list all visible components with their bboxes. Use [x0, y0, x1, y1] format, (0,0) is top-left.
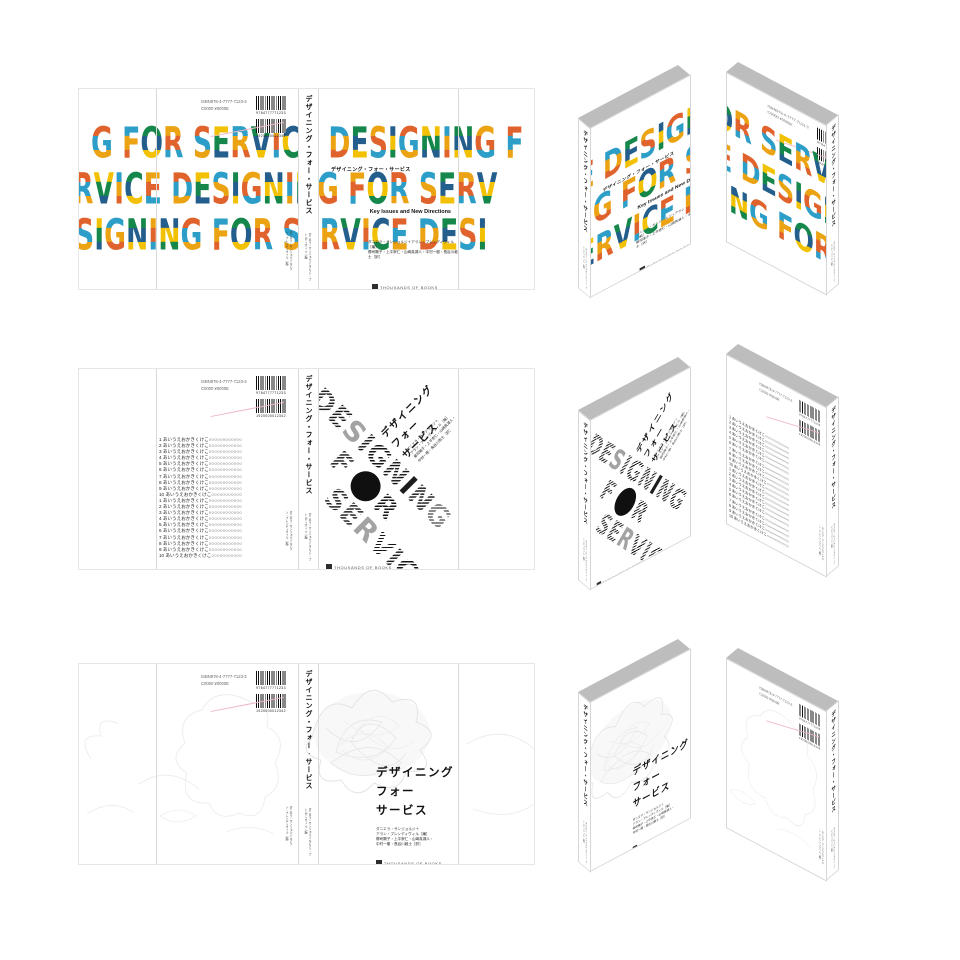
front-cover-art-design2: DESIGNING FR SERVICE デザイニング フォー サービス ダニエ…: [318, 369, 458, 569]
isbn-text: ISBN978-4-7777-7123-3: [201, 674, 247, 679]
fold-line: [298, 664, 299, 864]
fold-line: [318, 89, 319, 289]
back-cover-credits: ダニエラ・サンジョルジ＋アラン・プレンディヴィル［編］: [285, 806, 293, 850]
book-3d-back-design1: G FOR SERVICE DESIGNING F RVICE DESIGNIN…: [722, 60, 852, 305]
barcode-block: ISBN978-4-7777-7123-3 C0000 ¥0000E 97847…: [727, 356, 827, 410]
fold-line: [156, 664, 157, 864]
publisher-logo-icon: [597, 581, 601, 588]
publisher-logo-slot: THOUSANDS OF BOOKS: [372, 277, 438, 290]
barcode-number-1: 9784777771233: [256, 391, 286, 395]
spine-title: デザイニング・フォー・サービス: [582, 701, 588, 808]
spine-credits: ダニエラ・サンジョルジ＋アラン・プレンディヴィル［編］: [304, 233, 312, 283]
fold-line: [156, 89, 157, 289]
fold-line: [458, 664, 459, 864]
publisher-logo-icon: [376, 860, 382, 865]
design-presentation-board: G FOR SERVICE DESIGNING F RVICE DESIGNIN…: [0, 0, 960, 960]
jacket-flat-design3: ISBN978-4-7777-7123-3 C0000 ¥0000E 97847…: [78, 663, 535, 865]
fold-line: [458, 89, 459, 289]
fold-line: [318, 369, 319, 569]
spine-credits: ダニエラ・サンジョルジ＋アラン・プレンディヴィル［編］: [583, 819, 588, 866]
back-cover-credits: ダニエラ・サンジョルジ＋アラン・プレンディヴィル［編］: [285, 231, 293, 275]
book-3d-back-design3: ISBN978-4-7777-7123-3 C0000 ¥0000E 97847…: [722, 646, 852, 891]
back-cover-credits: ダニエラ・サンジョルジ＋アラン・プレンディヴィル［編］: [818, 829, 824, 869]
barcode-number-1: 9784777771233: [256, 111, 286, 115]
publisher-logo-icon: [326, 564, 332, 569]
cover-credits: ダニエラ・サンジョルジ＋ アラン・プレンディヴィル［編］ 郷司陽子・上平崇仁・山…: [376, 827, 434, 847]
price-code-text: C0000 ¥0000E: [201, 106, 229, 111]
front-cover-panel: デザイニング フォー サービス ダニエラ・サンジョルジ＋ アラン・プレンディヴィ…: [318, 664, 458, 864]
jacket-flat-design2: 1 あいうえおかきくけこ○○○○○○○○○○○○2 あいうえおかきくけこ○○○○…: [78, 368, 535, 570]
publisher-name: THOUSANDS OF BOOKS: [384, 861, 442, 866]
fold-line: [298, 89, 299, 289]
cover-title-japanese: デザイニング・フォー・サービス: [331, 166, 411, 173]
isbn-text: ISBN978-4-7777-7123-3: [201, 99, 247, 104]
back-cover-art-design2: 1 あいうえおかきくけこ○○○○○○○○○○○○2 あいうえおかきくけこ○○○○…: [156, 369, 298, 569]
spine-panel: デザイニング・フォー・サービス ダニエラ・サンジョルジ＋アラン・プレンディヴィル…: [298, 369, 318, 569]
back-cover-panel: ISBN978-4-7777-7123-3 C0000 ¥0000E 97847…: [156, 664, 298, 864]
publisher-logo-icon: [633, 845, 637, 852]
credits-translators: 郷司陽子・上平崇仁・山崎真湖人・中村一樹・長谷川敦士［訳］: [368, 250, 458, 260]
barcode-number-2: 1920000012342: [256, 414, 286, 418]
spine-title: デザイニング・フォー・サービス: [303, 375, 313, 495]
barcode-ean-1: [256, 96, 286, 110]
barcode-ean-1: [256, 376, 286, 390]
spine-title: デザイニング・フォー・サービス: [582, 419, 588, 526]
book-3d-front-design2: デザイニング・フォー・サービス ダニエラ・サンジョルジ＋アラン・プレンディヴィル…: [574, 352, 704, 597]
publisher-logo-icon: [372, 284, 378, 290]
spine-credits: ダニエラ・サンジョルジ＋アラン・プレンディヴィル［編］: [583, 537, 588, 584]
spine-title: デザイニング・フォー・サービス: [830, 709, 836, 816]
fold-line: [298, 369, 299, 569]
price-code-text: C0000 ¥0000E: [201, 386, 229, 391]
spine-credits: ダニエラ・サンジョルジ＋アラン・プレンディヴィル［編］: [583, 245, 588, 292]
book-spine-face: デザイニング・フォー・サービス ダニエラ・サンジョルジ＋アラン・プレンディヴィル…: [826, 114, 839, 295]
back-cover-credits: ダニエラ・サンジョルジ＋アラン・プレンディヴィル［編］: [285, 511, 293, 555]
isbn-text: ISBN978-4-7777-7123-3: [201, 379, 247, 384]
spine-credits: ダニエラ・サンジョルジ＋アラン・プレンディヴィル［編］: [304, 513, 312, 563]
spine-title: デザイニング・フォー・サービス: [303, 95, 313, 215]
book-spine-face: デザイニング・フォー・サービス ダニエラ・サンジョルジ＋アラン・プレンディヴィル…: [826, 396, 839, 577]
jacket-flat-design1: G FOR SERVICE DESIGNING F RVICE DESIGNIN…: [78, 88, 535, 290]
spine-panel: デザイニング・フォー・サービス ダニエラ・サンジョルジ＋アラン・プレンディヴィル…: [298, 664, 318, 864]
back-cover-credits: ダニエラ・サンジョルジ＋アラン・プレンディヴィル［編］: [818, 525, 824, 565]
spine-panel: デザイニング・フォー・サービス ダニエラ・サンジョルジ＋アラン・プレンディヴィル…: [298, 89, 318, 289]
spine-credits: ダニエラ・サンジョルジ＋アラン・プレンディヴィル［編］: [304, 808, 312, 858]
back-cover-panel: ISBN978-4-7777-7123-3 C0000 ¥0000E 97847…: [156, 89, 298, 289]
fold-line: [156, 369, 157, 569]
spine-title: デザイニング・フォー・サービス: [303, 670, 313, 790]
fold-line: [318, 664, 319, 864]
barcode-ean-1: [256, 671, 286, 685]
spine-title: デザイニング・フォー・サービス: [582, 127, 588, 234]
barcode-block: ISBN978-4-7777-7123-3 C0000 ¥0000E 97847…: [727, 660, 827, 714]
book-3d-front-design3: デザイニング・フォー・サービス ダニエラ・サンジョルジ＋アラン・プレンディヴィル…: [574, 634, 704, 879]
book-spine-face: デザイニング・フォー・サービス ダニエラ・サンジョルジ＋アラン・プレンディヴィル…: [826, 700, 839, 881]
book-3d-back-design2: 1 あいうえおかきくけこ○○○○○○○○○○○○2 あいうえおかきくけこ○○○○…: [722, 342, 852, 587]
front-cover-panel: デザイニング・フォー・サービス Key Issues and New Direc…: [318, 89, 458, 289]
front-cover-panel: DESIGNING FR SERVICE デザイニング フォー サービス ダニエ…: [318, 369, 458, 569]
fold-line: [458, 369, 459, 569]
credits-editors: ダニエラ・サンジョルジ＋アラン・プレンディヴィル［編］: [368, 240, 458, 250]
publisher-name: THOUSANDS OF BOOKS: [380, 285, 438, 290]
barcode-number-2: 1920000012342: [256, 709, 286, 713]
back-cover-art-design3: ISBN978-4-7777-7123-3 C0000 ¥0000E 97847…: [156, 664, 298, 864]
spine-credits: ダニエラ・サンジョルジ＋アラン・プレンディヴィル［編］: [831, 241, 836, 288]
cover-credits: ダニエラ・サンジョルジ＋アラン・プレンディヴィル［編］ 郷司陽子・上平崇仁・山崎…: [368, 240, 458, 260]
publisher-logo: THOUSANDS OF BOOKS: [372, 284, 438, 290]
book-3d-front-design1: デザイニング・フォー・サービス ダニエラ・サンジョルジ＋アラン・プレンディヴィル…: [574, 60, 704, 305]
spine-credits: ダニエラ・サンジョルジ＋アラン・プレンディヴィル［編］: [831, 827, 836, 874]
price-code-text: C0000 ¥0000E: [201, 681, 229, 686]
cover-subtitle-english: Key Issues and New Directions: [370, 209, 451, 215]
publisher-logo-slot: THOUSANDS OF BOOKS: [376, 853, 442, 865]
barcode-number-2: 1920000012342: [256, 134, 286, 138]
spine-title: デザイニング・フォー・サービス: [830, 123, 836, 230]
spine-title: デザイニング・フォー・サービス: [830, 405, 836, 512]
spine-credits: ダニエラ・サンジョルジ＋アラン・プレンディヴィル［編］: [831, 523, 836, 570]
cover-title-japanese: デザイニング フォー サービス: [376, 764, 454, 821]
cover-title-japanese: デザイニング フォー サービス: [633, 735, 689, 813]
front-cover-art-design3: デザイニング フォー サービス ダニエラ・サンジョルジ＋ アラン・プレンディヴィ…: [318, 664, 458, 864]
back-cover-panel: 1 あいうえおかきくけこ○○○○○○○○○○○○2 あいうえおかきくけこ○○○○…: [156, 369, 298, 569]
publisher-logo: THOUSANDS OF BOOKS: [376, 860, 442, 865]
barcode-number-1: 9784777771233: [256, 686, 286, 690]
